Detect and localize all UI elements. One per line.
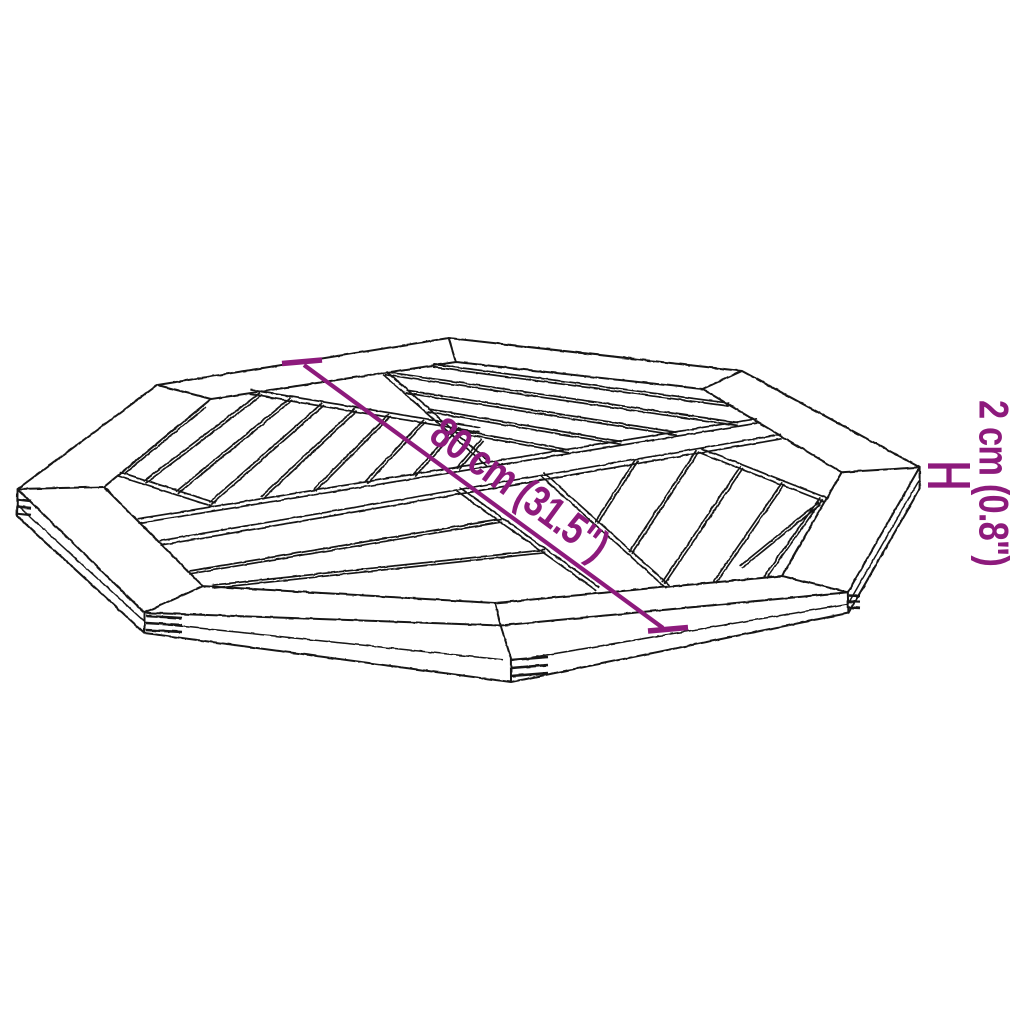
svg-text:2 cm (0.8"): 2 cm (0.8")	[969, 400, 1016, 566]
